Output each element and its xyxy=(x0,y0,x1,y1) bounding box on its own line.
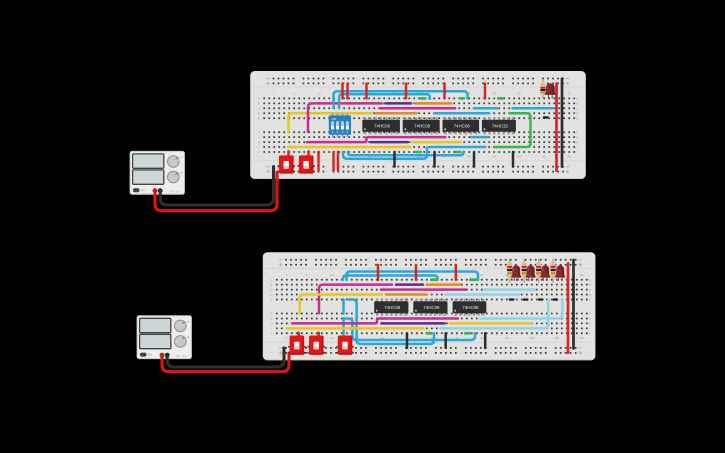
svg-text:60: 60 xyxy=(567,92,571,96)
svg-text:1: 1 xyxy=(273,155,275,159)
svg-text:1: 1 xyxy=(286,336,288,340)
svg-text:40: 40 xyxy=(467,155,471,159)
svg-text:74HC08: 74HC08 xyxy=(423,305,440,310)
svg-text:74HC08: 74HC08 xyxy=(414,123,431,128)
svg-text:45: 45 xyxy=(505,336,509,340)
svg-text:B: B xyxy=(270,283,272,287)
svg-text:H: H xyxy=(270,322,272,326)
svg-text:30V · 5A: 30V · 5A xyxy=(176,354,186,358)
svg-text:40: 40 xyxy=(480,336,484,340)
svg-text:B: B xyxy=(589,283,591,287)
svg-text:F: F xyxy=(258,130,260,134)
svg-text:B: B xyxy=(258,102,260,106)
svg-text:H: H xyxy=(589,322,591,326)
svg-text:1: 1 xyxy=(286,273,288,277)
svg-text:E: E xyxy=(258,116,260,120)
svg-text:5: 5 xyxy=(293,155,295,159)
svg-text:F: F xyxy=(271,312,273,316)
svg-text:60: 60 xyxy=(580,336,584,340)
svg-text:5: 5 xyxy=(306,336,308,340)
svg-text:5: 5 xyxy=(306,273,308,277)
svg-text:A: A xyxy=(589,278,591,282)
svg-text:50: 50 xyxy=(517,92,521,96)
svg-text:E: E xyxy=(576,116,578,120)
svg-text:74HC86: 74HC86 xyxy=(374,123,391,128)
svg-text:E: E xyxy=(589,298,591,302)
svg-text:74HC32: 74HC32 xyxy=(492,123,509,128)
svg-text:A: A xyxy=(576,97,578,101)
svg-text:74HC08: 74HC08 xyxy=(384,305,401,310)
svg-text:A: A xyxy=(258,97,260,101)
svg-text:50: 50 xyxy=(530,336,534,340)
svg-text:F: F xyxy=(576,130,578,134)
svg-text:A: A xyxy=(270,278,272,282)
svg-text:B: B xyxy=(576,102,578,106)
svg-text:I: I xyxy=(589,327,590,331)
svg-text:30V · 5A: 30V · 5A xyxy=(169,190,179,194)
svg-text:E: E xyxy=(270,298,272,302)
svg-text:74HC08: 74HC08 xyxy=(454,123,471,128)
svg-text:1: 1 xyxy=(273,92,275,96)
svg-text:F: F xyxy=(589,312,591,316)
svg-text:60: 60 xyxy=(580,273,584,277)
svg-text:55: 55 xyxy=(542,155,546,159)
svg-text:40: 40 xyxy=(480,273,484,277)
svg-text:5: 5 xyxy=(293,92,295,96)
svg-text:H: H xyxy=(258,140,260,144)
svg-text:60: 60 xyxy=(567,155,571,159)
svg-text:55: 55 xyxy=(555,336,559,340)
svg-text:45: 45 xyxy=(492,155,496,159)
svg-text:74HC08: 74HC08 xyxy=(462,305,479,310)
svg-text:10: 10 xyxy=(330,273,334,277)
svg-text:H: H xyxy=(576,140,578,144)
svg-text:45: 45 xyxy=(492,92,496,96)
svg-text:10: 10 xyxy=(317,92,321,96)
svg-text:ON: ON xyxy=(332,117,337,121)
svg-text:10: 10 xyxy=(330,336,334,340)
svg-text:50: 50 xyxy=(517,155,521,159)
